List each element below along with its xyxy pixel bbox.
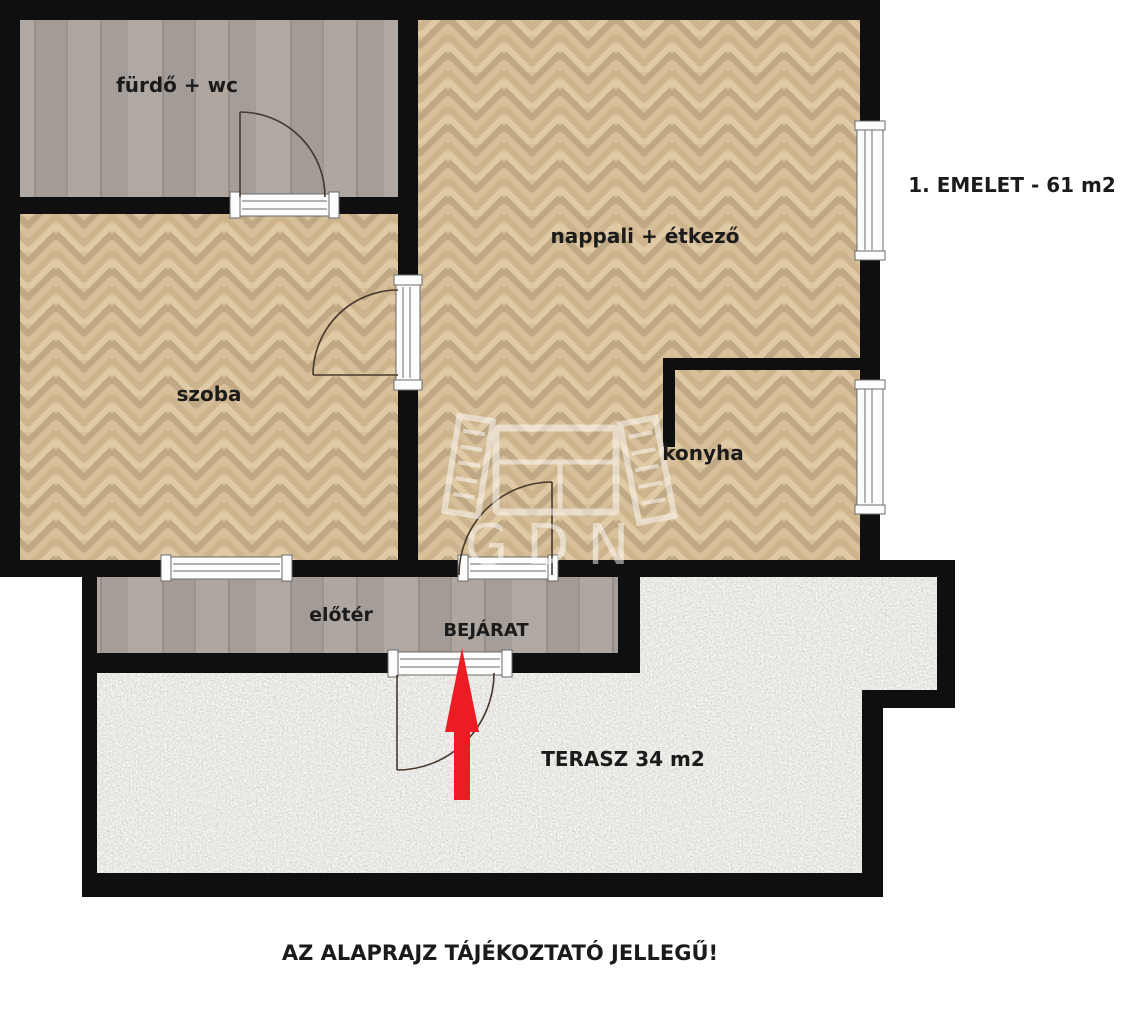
floor-plan-page: GDN fürdő + wc nappali + étkező szoba ko… — [0, 0, 1126, 1024]
terrace-label: TERASZ 34 m2 — [541, 747, 705, 771]
disclaimer-text: AZ ALAPRAJZ TÁJÉKOZTATÓ JELLEGŰ! — [282, 940, 718, 965]
kitchen-label: konyha — [662, 441, 744, 465]
wall-segment — [0, 20, 20, 577]
entrance-label: BEJÁRAT — [443, 619, 529, 641]
wall-segment — [0, 0, 880, 20]
watermark-text: GDN — [465, 513, 647, 578]
hall-label: előtér — [309, 604, 373, 626]
floor-title: 1. EMELET - 61 m2 — [908, 173, 1116, 197]
floor-plan-drawing: GDN fürdő + wc nappali + étkező szoba ko… — [0, 0, 1126, 1024]
wall-segment — [862, 690, 955, 708]
wall-segment — [82, 653, 640, 673]
wall-segment — [82, 560, 97, 897]
wall-segment — [862, 708, 883, 897]
entrance-door — [388, 650, 512, 677]
bedroom-window — [161, 555, 292, 581]
bedroom-door — [394, 275, 422, 390]
bathroom-door — [230, 192, 339, 218]
wall-segment — [0, 197, 418, 214]
wall-segment — [937, 560, 955, 708]
kitchen-partition-wall — [663, 358, 860, 370]
bedroom-label: szoba — [176, 382, 241, 406]
bathroom-label: fürdő + wc — [116, 73, 238, 97]
wall-segment — [618, 577, 640, 673]
bathroom-floor — [20, 20, 398, 197]
kitchen-window — [855, 380, 885, 514]
living-dining-label: nappali + étkező — [550, 224, 739, 248]
wall-segment — [82, 873, 883, 897]
living-room-window — [855, 121, 885, 260]
kitchen-partition-wall — [663, 358, 675, 447]
